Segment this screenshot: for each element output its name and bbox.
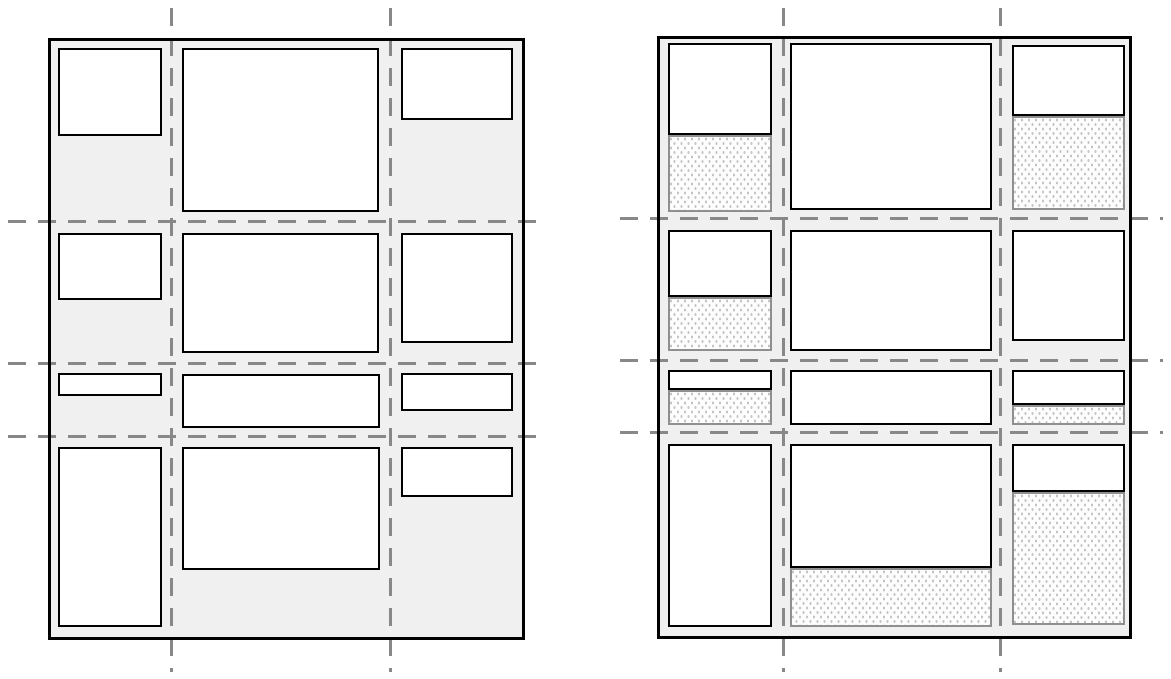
left-grid-panel-grid-item-6	[401, 233, 513, 343]
right-grid-panel-vertical-grid-line-2	[999, 8, 1002, 672]
right-grid-panel-free-space-area-6	[790, 568, 992, 627]
left-grid-panel-horizontal-grid-line-2	[8, 362, 546, 365]
left-grid-panel-grid-item-11	[182, 447, 380, 570]
left-grid-panel-horizontal-grid-line-1	[8, 220, 546, 223]
left-grid-panel-grid-item-10	[58, 447, 162, 627]
left-grid-panel-grid-item-12	[401, 447, 513, 497]
right-grid-panel-grid-item-12	[1012, 444, 1125, 492]
left-grid-panel-vertical-grid-line-2	[389, 8, 392, 672]
right-grid-panel-free-space-area-3	[668, 297, 772, 351]
right-grid-panel-free-space-area-2	[1012, 116, 1125, 210]
left-grid-panel-grid-item-1	[58, 48, 162, 136]
right-grid-panel-grid-item-1	[668, 43, 772, 135]
right-grid-panel-free-space-area-7	[1012, 492, 1125, 625]
right-grid-panel-grid-item-10	[668, 444, 772, 627]
right-grid-panel-horizontal-grid-line-1	[620, 217, 1163, 220]
right-grid-panel-grid-item-7	[668, 370, 772, 390]
right-grid-panel-vertical-grid-line-1	[782, 8, 785, 672]
left-grid-panel-grid-item-8	[182, 374, 380, 428]
left-grid-panel-horizontal-grid-line-3	[8, 435, 546, 438]
left-grid-panel-grid-item-9	[401, 373, 513, 411]
right-grid-panel-grid-item-6	[1012, 230, 1125, 341]
left-grid-panel-grid-item-7	[58, 373, 162, 396]
right-grid-panel-grid-item-4	[668, 230, 772, 297]
left-grid-panel-grid-item-5	[182, 233, 379, 353]
left-grid-panel-grid-item-2	[182, 48, 379, 212]
right-grid-panel-grid-item-2	[790, 43, 992, 210]
right-grid-panel-free-space-area-5	[1012, 405, 1125, 425]
right-grid-panel-horizontal-grid-line-2	[620, 359, 1163, 362]
left-grid-panel-vertical-grid-line-1	[170, 8, 173, 672]
left-grid-panel-grid-item-3	[401, 48, 513, 120]
right-grid-panel-grid-item-9	[1012, 370, 1125, 405]
diagram-canvas	[0, 0, 1171, 679]
left-grid-panel-grid-item-4	[58, 233, 162, 300]
right-grid-panel-grid-item-5	[790, 230, 992, 351]
right-grid-panel-grid-item-11	[790, 444, 992, 568]
right-grid-panel-grid-item-8	[790, 370, 992, 425]
right-grid-panel-horizontal-grid-line-3	[620, 431, 1163, 434]
right-grid-panel-grid-item-3	[1012, 45, 1125, 116]
right-grid-panel-free-space-area-1	[668, 135, 772, 212]
right-grid-panel-free-space-area-4	[668, 390, 772, 425]
